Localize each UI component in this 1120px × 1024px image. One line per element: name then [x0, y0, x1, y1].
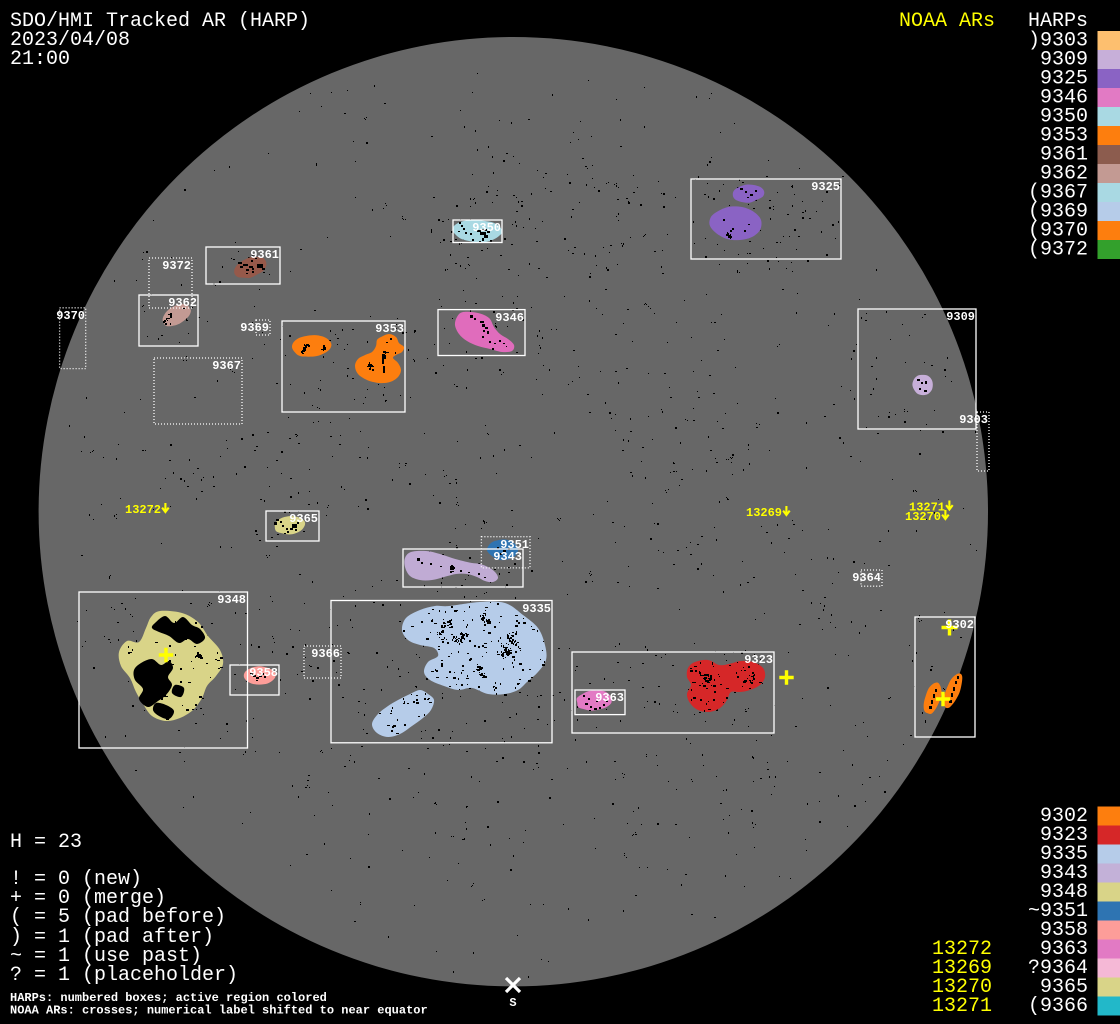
svg-text:9309: 9309 [946, 310, 975, 324]
svg-text:(9372: (9372 [1028, 239, 1088, 262]
svg-text:(9366: (9366 [1028, 995, 1088, 1018]
svg-text:9323: 9323 [744, 653, 773, 667]
svg-text:9353: 9353 [375, 322, 404, 336]
svg-text:9367: 9367 [212, 359, 241, 373]
svg-text:9346: 9346 [495, 311, 524, 325]
svg-text:13271: 13271 [932, 995, 992, 1018]
svg-text:9302: 9302 [945, 618, 974, 632]
svg-text:9365: 9365 [289, 512, 318, 526]
svg-text:9363: 9363 [595, 691, 624, 705]
svg-text:9369: 9369 [240, 321, 269, 335]
svg-text:H = 23: H = 23 [10, 831, 82, 854]
svg-text:13270: 13270 [905, 510, 941, 524]
svg-text:13269: 13269 [746, 506, 782, 520]
svg-text:9348: 9348 [217, 593, 246, 607]
svg-text:9372: 9372 [162, 259, 191, 273]
svg-text:9351: 9351 [500, 538, 529, 552]
svg-text:9370: 9370 [56, 309, 85, 323]
svg-text:9366: 9366 [311, 647, 340, 661]
svg-text:9335: 9335 [522, 602, 551, 616]
svg-text:9343: 9343 [493, 550, 522, 564]
svg-text:9350: 9350 [472, 221, 501, 235]
svg-text:21:00: 21:00 [10, 48, 70, 71]
svg-text:9358: 9358 [249, 666, 278, 680]
svg-text:S: S [509, 996, 516, 1010]
svg-text:9362: 9362 [168, 296, 197, 310]
svg-text:9303: 9303 [959, 413, 988, 427]
svg-text:9361: 9361 [250, 248, 279, 262]
svg-text:? = 1 (placeholder): ? = 1 (placeholder) [10, 964, 238, 987]
svg-text:9325: 9325 [811, 180, 840, 194]
svg-text:9364: 9364 [852, 571, 881, 585]
svg-text:13272: 13272 [125, 503, 161, 517]
svg-text:NOAA ARs: crosses; numerical l: NOAA ARs: crosses; numerical label shift… [10, 1004, 428, 1018]
svg-text:NOAA ARs: NOAA ARs [899, 10, 995, 33]
